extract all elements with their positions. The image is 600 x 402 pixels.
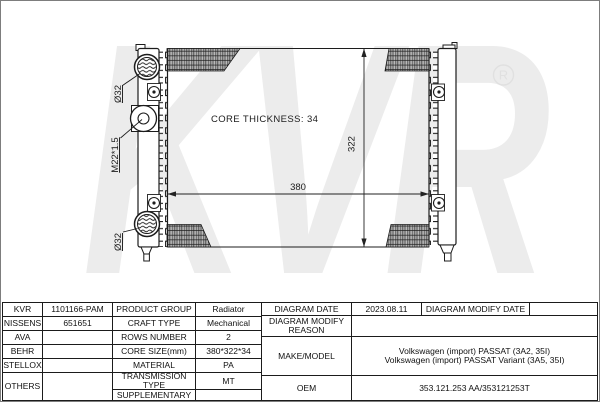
brand-behr: BEHR <box>3 345 43 359</box>
registered-symbol-letter: R <box>499 68 508 83</box>
spec-label-supplementary: SUPPLEMENTARY <box>113 390 196 400</box>
brand-behr-code <box>43 345 113 359</box>
catalog-card-page: KVR R <box>0 0 600 402</box>
diagram-date-label: DIAGRAM DATE <box>262 303 352 316</box>
fins-hatch-top-right <box>385 49 429 72</box>
spec-table-right: DIAGRAM DATE 2023.08.11 DIAGRAM MODIFY D… <box>262 303 597 400</box>
brand-nissens: NISSENS <box>3 317 43 331</box>
spec-value-transmission-type: MT <box>196 373 262 390</box>
width-dimension-label: 380 <box>290 182 306 193</box>
right-tank <box>438 49 456 246</box>
filler-thread-label: M22*1.5 <box>110 137 121 172</box>
diagram-modify-date-value <box>530 303 597 316</box>
height-dimension-label: 322 <box>347 136 358 152</box>
spec-label-rows-number: ROWS NUMBER <box>113 331 196 345</box>
spec-label-material: MATERIAL <box>113 359 196 373</box>
brand-stellox-code <box>43 359 113 373</box>
brand-others-code <box>43 373 113 400</box>
brand-stellox: STELLOX <box>3 359 43 373</box>
make-model-label: MAKE/MODEL <box>262 337 352 376</box>
spec-value-material: PA <box>196 359 262 373</box>
inlet-diameter-label: Ø32 <box>113 85 124 103</box>
spec-label-craft-type: CRAFT TYPE <box>113 317 196 331</box>
brand-nissens-code: 651651 <box>43 317 113 331</box>
brand-ava-code <box>43 331 113 345</box>
spec-table-left: KVR 1101166-PAM PRODUCT GROUP Radiator N… <box>3 303 262 400</box>
core-thickness-label: CORE THICKNESS: 34 <box>211 114 318 125</box>
spec-label-core-size: CORE SIZE(mm) <box>113 345 196 359</box>
make-model-value: Volkswagen (import) PASSAT (3A2, 35I) Vo… <box>352 337 597 376</box>
spec-value-rows-number: 2 <box>196 331 262 345</box>
diagram-date-value: 2023.08.11 <box>352 303 422 316</box>
brand-kvr: KVR <box>3 303 43 317</box>
spec-value-supplementary <box>196 390 262 400</box>
brand-kvr-code: 1101166-PAM <box>43 303 113 317</box>
spec-value-craft-type: Mechanical <box>196 317 262 331</box>
spec-value-product-group: Radiator <box>196 303 262 317</box>
oem-label: OEM <box>262 376 352 400</box>
side-plate-left <box>159 49 168 247</box>
outlet-diameter-label: Ø32 <box>113 233 124 251</box>
modify-reason-label: DIAGRAM MODIFY REASON <box>262 316 352 337</box>
side-plate-right <box>430 49 439 245</box>
radiator-diagram: KVR R <box>1 1 600 301</box>
oem-value: 353.121.253 AA/353121253T <box>352 376 597 400</box>
diagram-modify-date-label: DIAGRAM MODIFY DATE <box>422 303 530 316</box>
modify-reason-value <box>352 316 597 337</box>
fins-hatch-bottom-right <box>386 225 429 248</box>
brand-ava: AVA <box>3 331 43 345</box>
make-model-line-2: Volkswagen (import) PASSAT Variant (3A5,… <box>385 356 565 365</box>
spec-value-core-size: 380*322*34 <box>196 345 262 359</box>
spec-table: KVR 1101166-PAM PRODUCT GROUP Radiator N… <box>2 302 598 401</box>
brand-others: OTHERS <box>3 373 43 400</box>
spec-label-product-group: PRODUCT GROUP <box>113 303 196 317</box>
spec-label-transmission-type: TRANSMISSION TYPE <box>113 373 196 390</box>
